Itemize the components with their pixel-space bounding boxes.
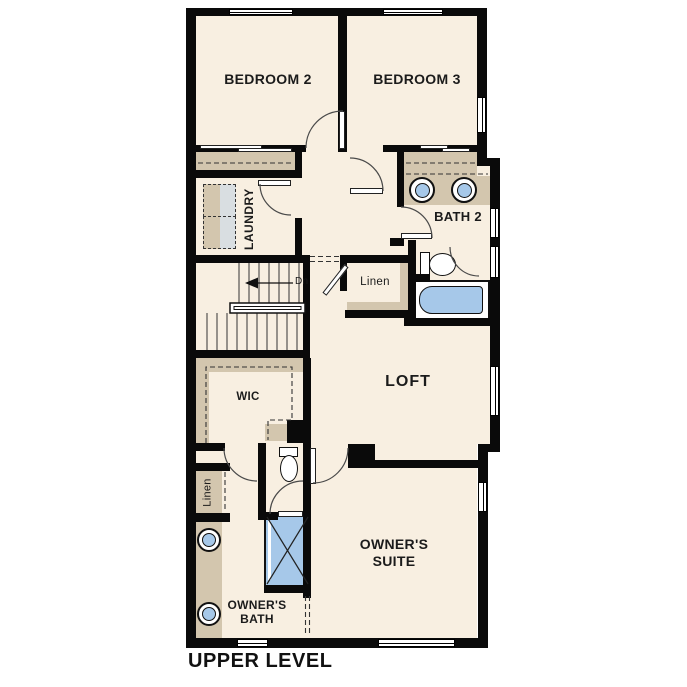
dryer-outline — [203, 216, 236, 249]
door-leaf-toilet-room — [278, 511, 303, 517]
wic-shelf — [265, 424, 287, 441]
wall-owners-top — [375, 460, 480, 468]
plan-title: UPPER LEVEL — [188, 650, 332, 673]
room-label-bath2: BATH 2 — [432, 209, 484, 224]
door-leaf-bath2 — [401, 233, 432, 239]
wall-linen-hall-top — [340, 255, 416, 263]
room-label-owners-suite: OWNER'S SUITE — [346, 536, 442, 569]
wall-linen-owners-top — [186, 463, 230, 471]
wall-bath2-alcove — [408, 274, 430, 282]
bath2-sink-right — [451, 177, 477, 203]
bath2-toilet-bowl — [429, 253, 456, 276]
wall-shower-bottom — [264, 585, 311, 593]
bath2-bathtub — [419, 286, 483, 314]
wall-wic-bottom — [196, 443, 225, 451]
shower-door-glass — [268, 521, 271, 580]
room-label-wic: WIC — [223, 391, 273, 405]
door-leaf-bedroom2 — [339, 111, 345, 149]
bath2-sink-right-bowl — [457, 183, 472, 198]
room-label-bedroom2: BEDROOM 2 — [198, 71, 338, 88]
wall-linen-owners-bottom — [186, 513, 230, 522]
stairs-direction-label: Dn — [295, 276, 319, 288]
wall-toilet-room-left — [258, 443, 266, 520]
wall-laundry-top — [188, 170, 302, 178]
wall-bath2-left — [397, 152, 404, 207]
floor-plan: BEDROOM 2 BEDROOM 3 LAUNDRY BATH 2 Linen… — [0, 0, 687, 687]
wall-wic-corner — [287, 420, 303, 443]
wall-bath2-loft — [404, 318, 500, 326]
window-bedroom3 — [383, 9, 443, 15]
window-owners-suite-bottom — [378, 639, 455, 647]
bath2-sink-left-bowl — [415, 183, 430, 198]
window-bedroom2 — [229, 9, 293, 15]
bypass-door-bedroom3-b — [442, 148, 470, 152]
washer-dryer-unit — [203, 184, 236, 249]
wall-loft-block — [348, 444, 375, 468]
wall-right-owners — [478, 444, 488, 648]
window-loft — [490, 366, 499, 416]
washer-outline — [203, 184, 236, 217]
owners-sink-top-bowl — [202, 533, 216, 547]
bath2-sink-left — [409, 177, 435, 203]
window-bath2-lower — [490, 246, 499, 278]
bedroom3-closet — [404, 152, 477, 176]
bypass-door-bedroom2-b — [238, 148, 292, 152]
owners-sink-top — [197, 528, 221, 552]
door-leaf-bedroom3 — [350, 188, 383, 194]
owners-toilet-bowl — [280, 455, 298, 482]
room-label-linen-owners: Linen — [202, 472, 215, 512]
window-bath2-upper — [490, 208, 499, 238]
room-label-laundry: LAUNDRY — [242, 179, 256, 259]
room-label-owners-bath: OWNER'S BATH — [217, 598, 297, 626]
window-owners-right — [478, 482, 487, 512]
door-leaf-laundry — [258, 180, 291, 186]
wall-linen-hall-bottom — [345, 310, 416, 318]
room-label-linen-hall: Linen — [349, 276, 401, 290]
wall-bath2-jog — [390, 238, 404, 246]
wall-stairs-bottom — [188, 350, 303, 358]
wall-toilet-room-bottom — [258, 512, 278, 520]
window-owners-bath-bottom — [237, 639, 268, 647]
room-label-loft: LOFT — [358, 373, 458, 392]
wall-left — [186, 8, 196, 648]
window-bedroom3-right — [477, 97, 486, 133]
room-label-bedroom3: BEDROOM 3 — [347, 71, 487, 88]
owners-sink-bottom-bowl — [202, 607, 216, 621]
door-leaf-owners-suite — [310, 448, 316, 484]
